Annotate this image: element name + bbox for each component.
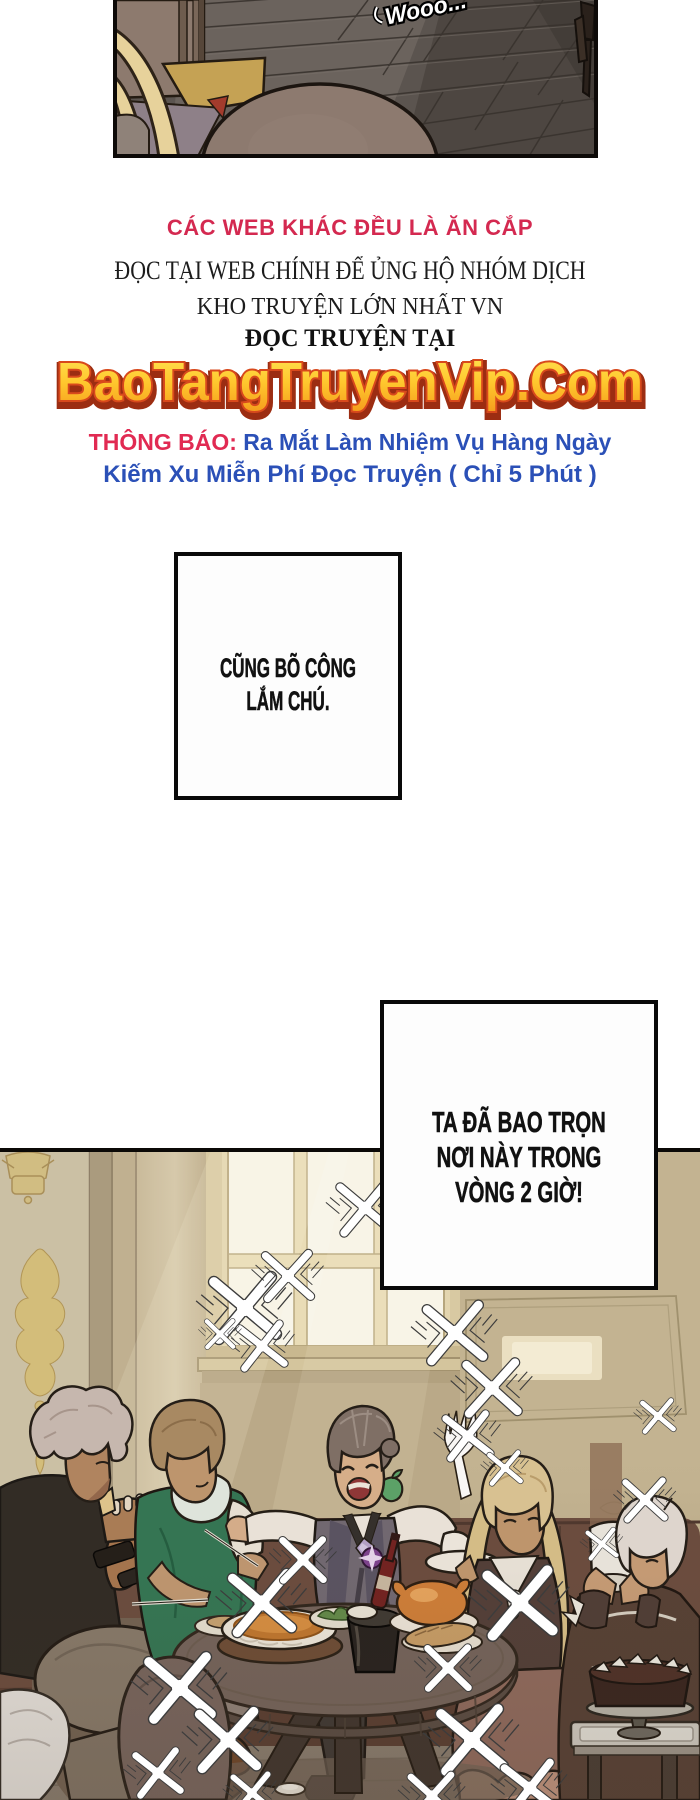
svg-text:BaoTangTruyenVip.Com: BaoTangTruyenVip.Com <box>57 352 643 412</box>
